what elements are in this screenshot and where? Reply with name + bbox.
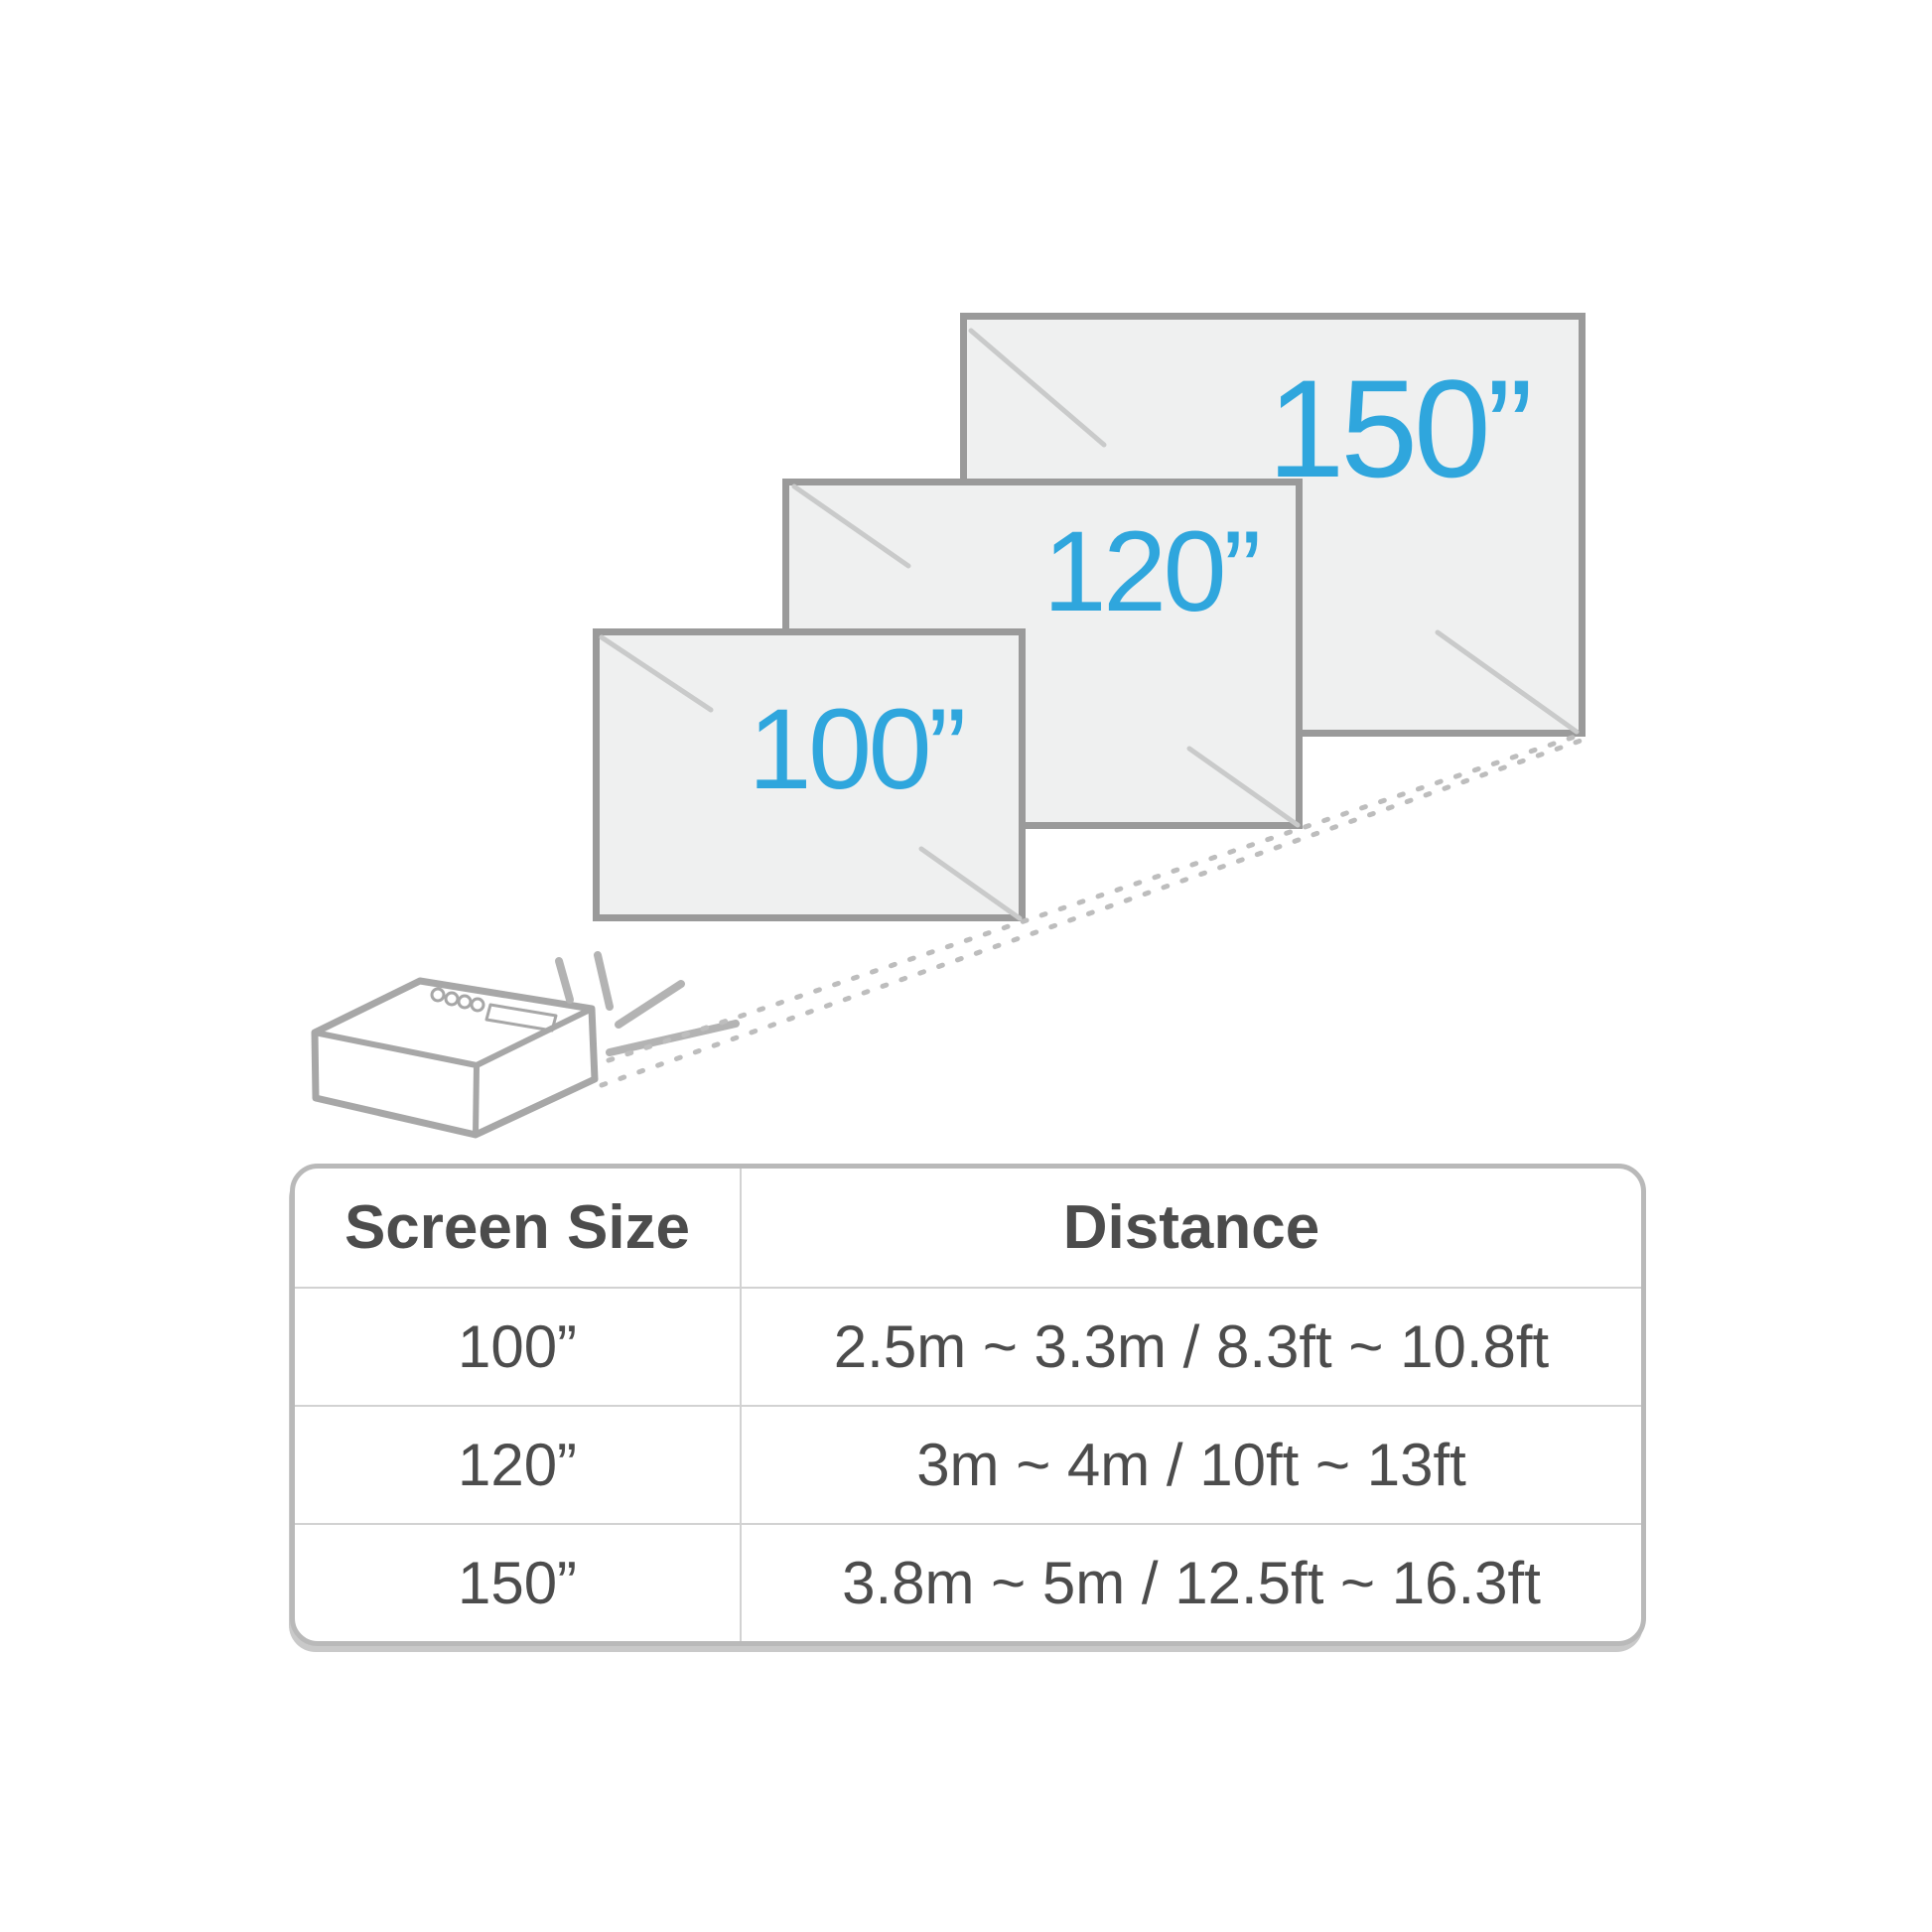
light-rays-icon [559,955,736,1052]
screen-100-label: 100” [749,693,963,807]
screen-100: 100” [593,628,1026,921]
table-header-distance: Distance [740,1169,1641,1287]
projector-display-slot-icon [486,1005,556,1031]
projector-edges [315,1009,592,1135]
projector-throw-distance-diagram: 150” 120” 100” [0,0,1932,1932]
table-row-150-size: 150” [295,1523,740,1641]
screen-150-label: 150” [1268,359,1529,498]
table-header-screen-size: Screen Size [295,1169,740,1287]
distance-table: Screen Size Distance 100” 2.5m ~ 3.3m / … [290,1164,1646,1646]
table-row-100-size: 100” [295,1287,740,1405]
table-row-150-distance: 3.8m ~ 5m / 12.5ft ~ 16.3ft [740,1523,1641,1641]
screen-120-label: 120” [1043,515,1258,629]
projector-body [315,981,595,1135]
projector-buttons-icon [432,989,483,1011]
table-row-120-size: 120” [295,1405,740,1523]
projector-icon [315,981,595,1135]
table-row-100-distance: 2.5m ~ 3.3m / 8.3ft ~ 10.8ft [740,1287,1641,1405]
table-row-120-distance: 3m ~ 4m / 10ft ~ 13ft [740,1405,1641,1523]
